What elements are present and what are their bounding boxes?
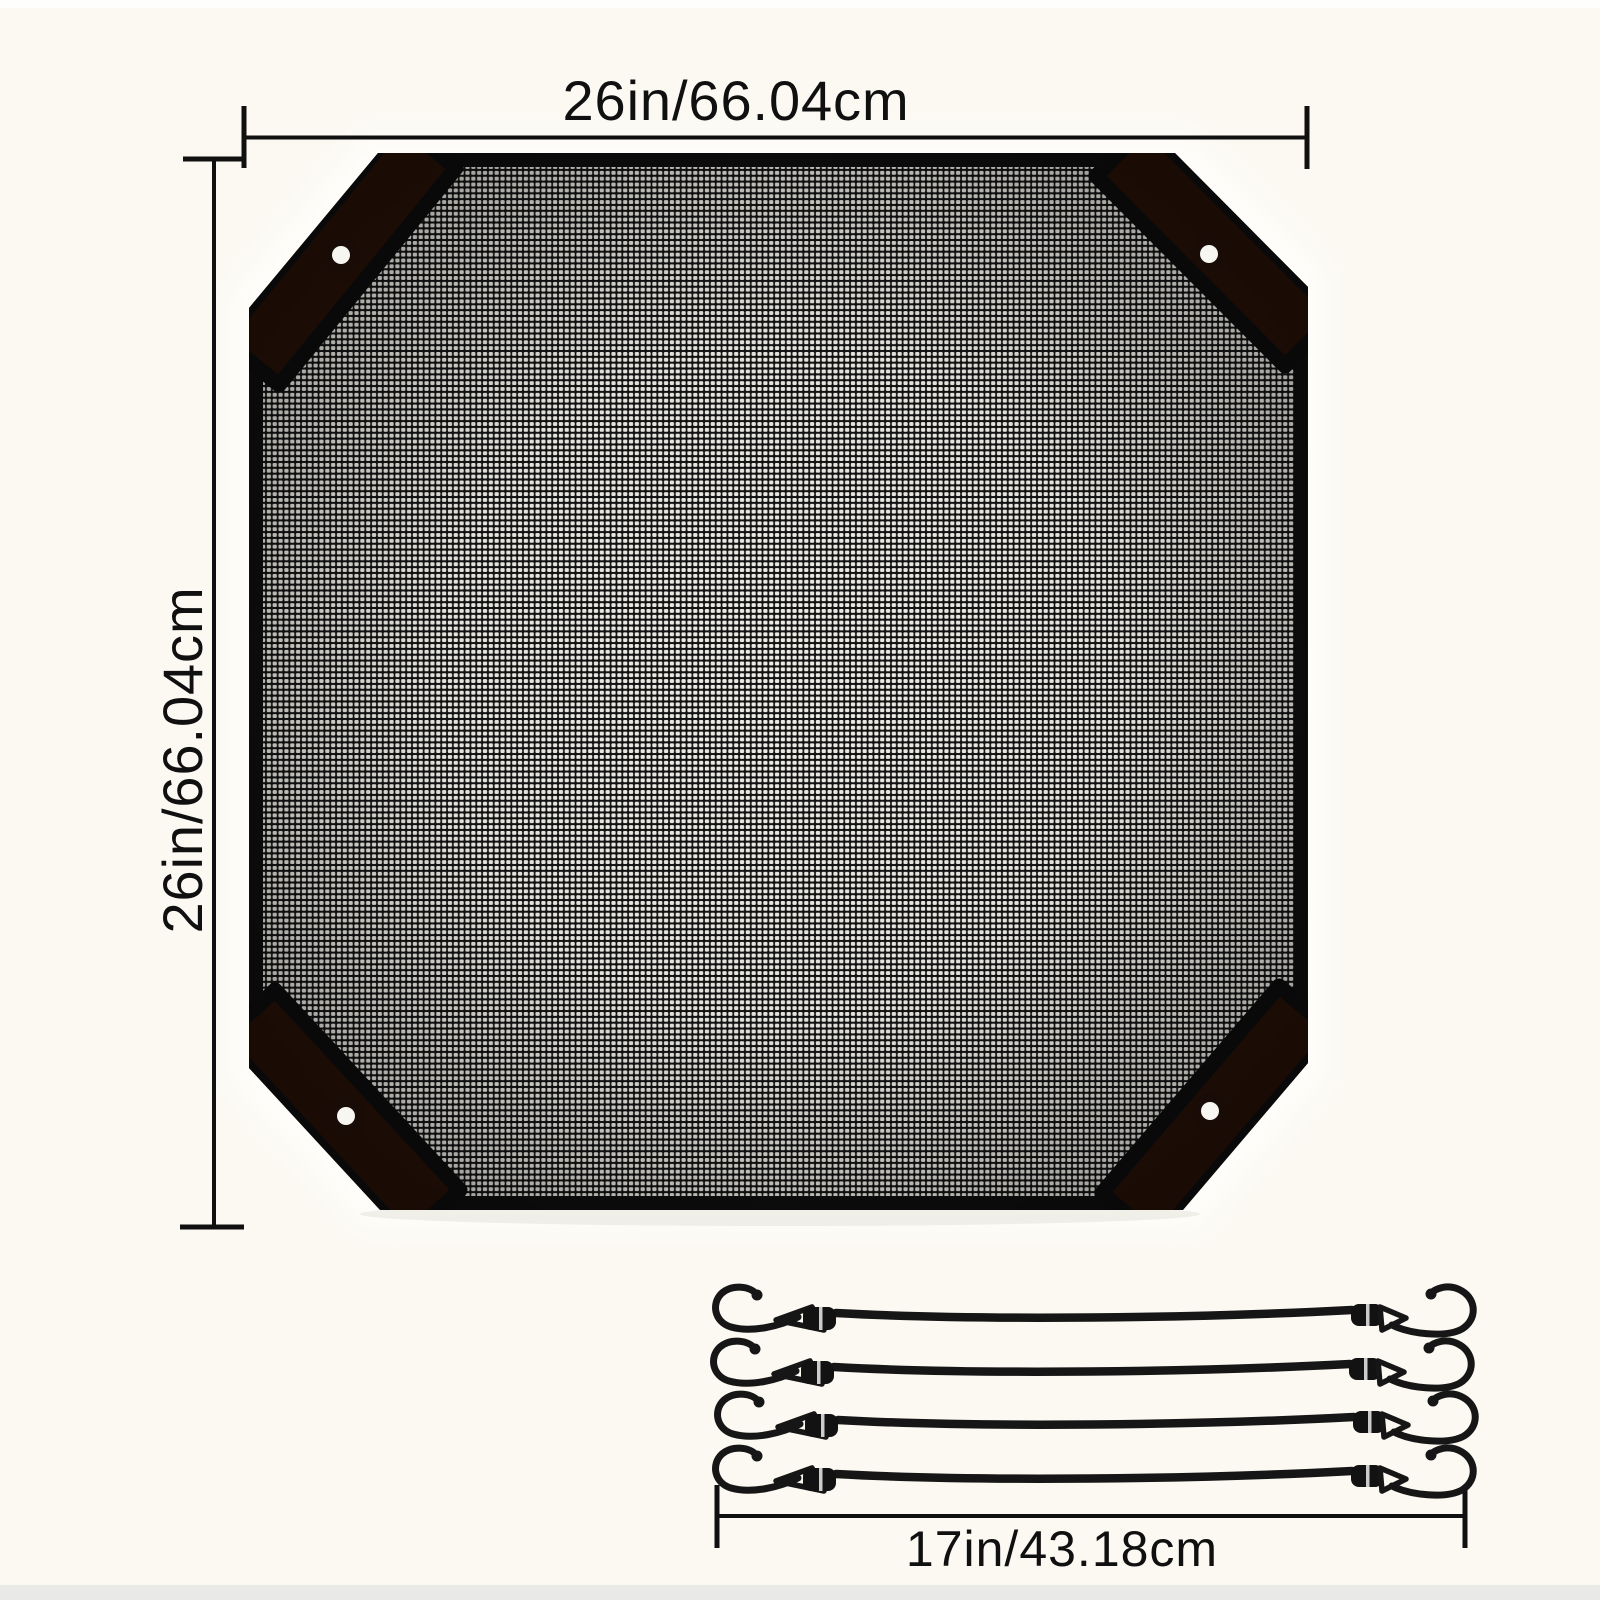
svg-text:26in/66.04cm: 26in/66.04cm <box>151 586 214 933</box>
svg-text:17in/43.18cm: 17in/43.18cm <box>906 1521 1218 1577</box>
svg-text:26in/66.04cm: 26in/66.04cm <box>562 69 909 132</box>
